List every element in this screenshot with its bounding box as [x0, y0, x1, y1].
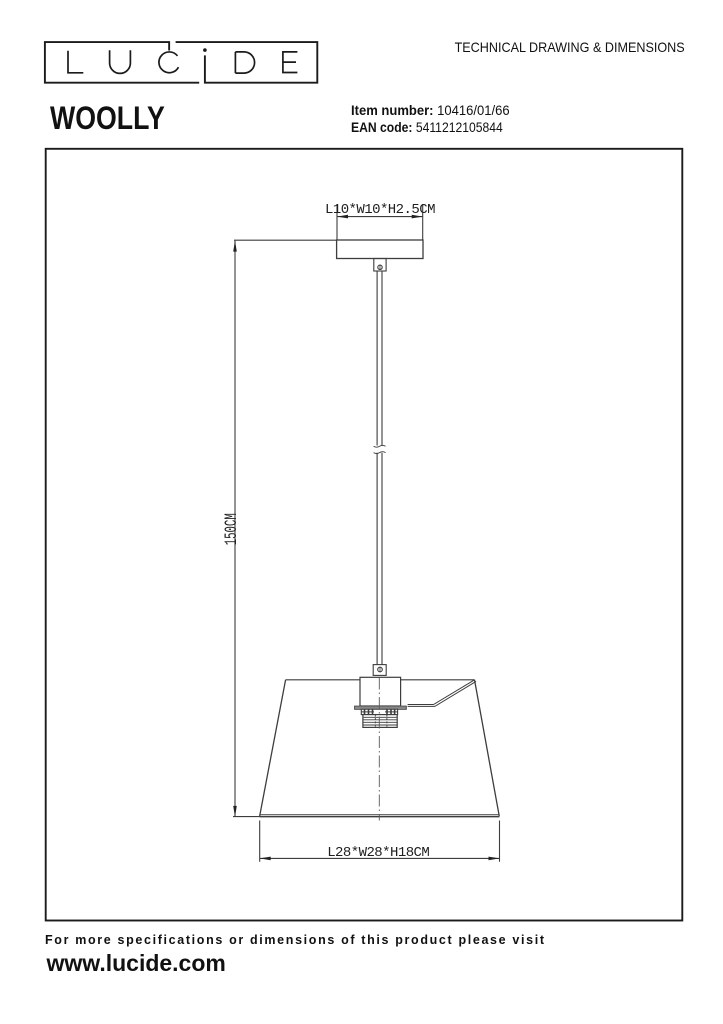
svg-text:150CM: 150CM: [223, 513, 242, 545]
